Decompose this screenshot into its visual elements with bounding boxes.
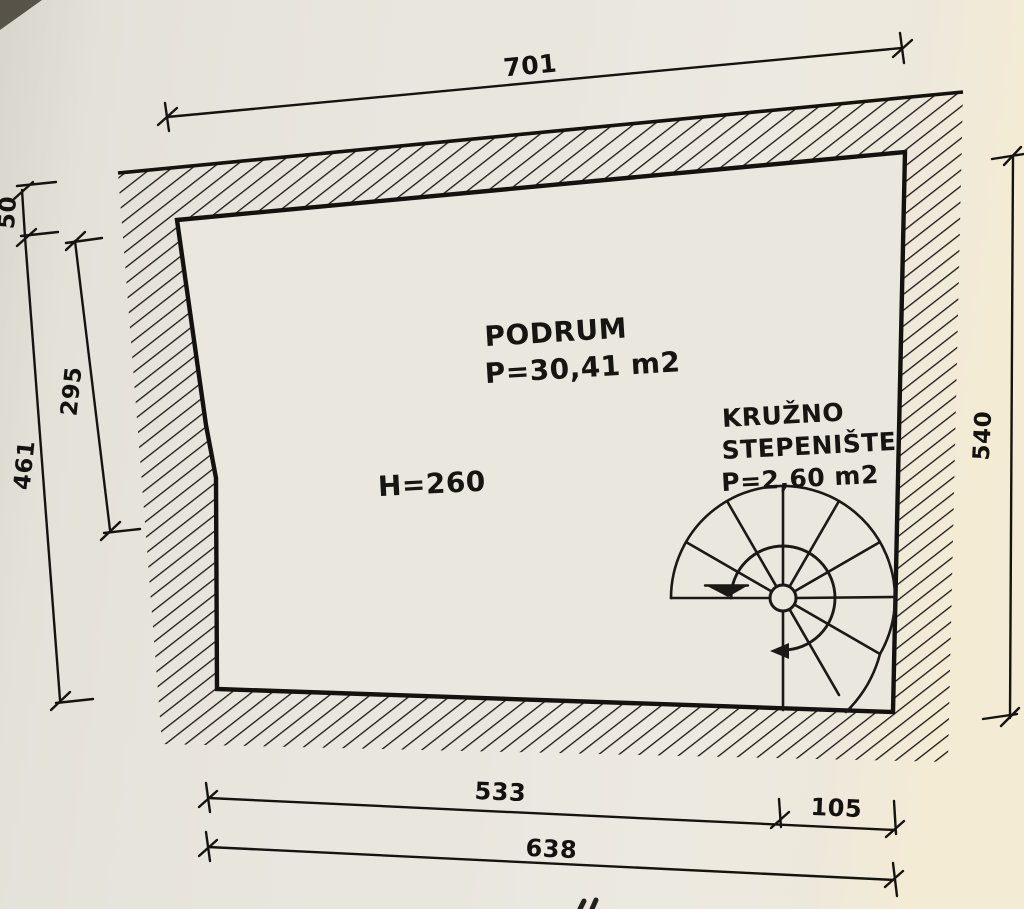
stair-center-column <box>770 585 796 611</box>
dimension-label-right-height: 540 <box>969 410 998 461</box>
dimension-label-left-middle: 295 <box>57 365 88 417</box>
dimension-label-left-top: 50 <box>0 195 22 230</box>
dimension-label-bottom-stair: 105 <box>810 793 863 823</box>
dimension-label-bottom-total: 638 <box>525 834 578 864</box>
floor-plan-drawing: 701 50 295 461 540 <box>0 0 1024 909</box>
dimension-label-top-width: 701 <box>502 49 558 83</box>
dimension-label-left-total: 461 <box>10 439 41 491</box>
dimension-label-bottom-room: 533 <box>474 777 527 807</box>
scanned-floor-plan: 701 50 295 461 540 <box>0 0 1024 909</box>
room-height-label: H=260 <box>377 465 486 504</box>
